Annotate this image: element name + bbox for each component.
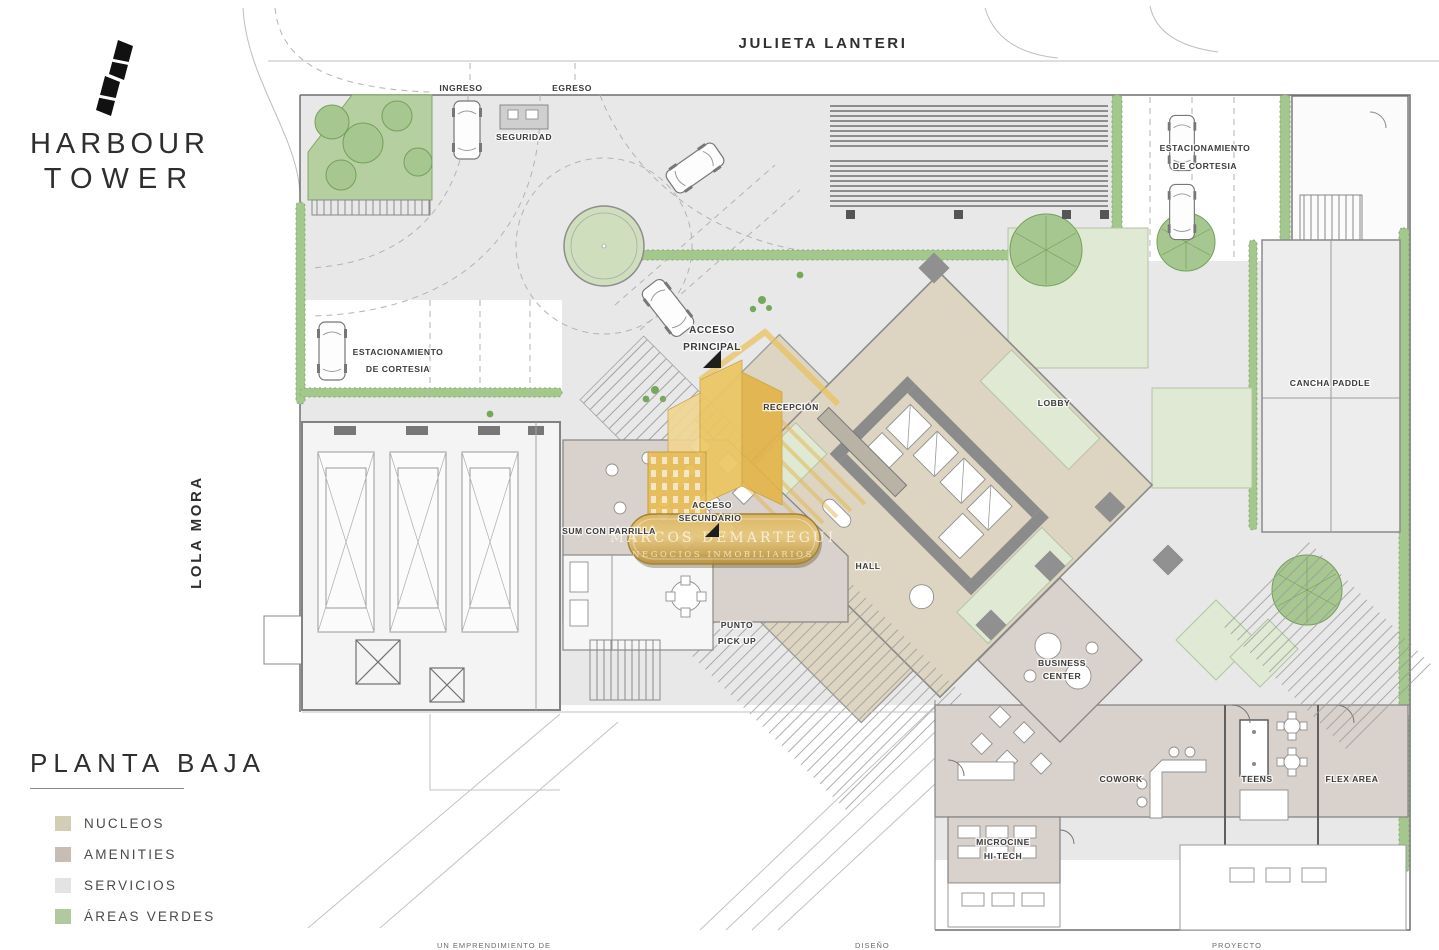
legend-item-areas-verdes: ÁREAS VERDES: [55, 901, 215, 932]
street-label-julieta-lanteri: JULIETA LANTERI: [739, 35, 908, 52]
label-punto-pickup-1: PUNTO: [721, 620, 753, 630]
legend-label: NUCLEOS: [84, 816, 165, 831]
page-title: PLANTA BAJA: [30, 748, 266, 779]
label-teens: TEENS: [1241, 774, 1272, 784]
brand-logo-icon: [93, 40, 136, 116]
label-estacionamiento-top-1: ESTACIONAMIENTO: [1160, 143, 1251, 153]
brand-wordmark: HARBOUR TOWER: [15, 128, 225, 196]
legend-item-nucleos: NUCLEOS: [55, 808, 215, 839]
legend-label: SERVICIOS: [84, 878, 177, 893]
label-sum-con-parrilla: SUM CON PARRILLA: [562, 526, 656, 536]
label-estacionamiento-left-1: ESTACIONAMIENTO: [353, 347, 444, 357]
label-acceso-secundario-2: SECUNDARIO: [679, 513, 742, 523]
legend-item-amenities: AMENITIES: [55, 839, 215, 870]
label-business-center-1: BUSINESS: [1038, 658, 1086, 668]
label-microcine-1: MICROCINE: [976, 837, 1030, 847]
nucleos-swatch: [55, 816, 71, 831]
floorplan-canvas: { "brand": {"line1": "HARBOUR", "line2":…: [0, 0, 1439, 950]
legend-label: AMENITIES: [84, 847, 177, 862]
footer-design: DISEÑO: [855, 941, 890, 950]
label-estacionamiento-top-2: DE CORTESIA: [1173, 161, 1237, 171]
servicios-swatch: [55, 878, 71, 893]
amenities-swatch: [55, 847, 71, 862]
label-flex-area: FLEX AREA: [1326, 774, 1379, 784]
label-hall: HALL: [856, 561, 881, 571]
label-egreso: EGRESO: [552, 83, 592, 93]
label-seguridad: SEGURIDAD: [496, 132, 552, 142]
label-estacionamiento-left-2: DE CORTESIA: [366, 364, 430, 374]
brand-line1: HARBOUR: [15, 128, 225, 161]
label-ingreso: INGRESO: [439, 83, 482, 93]
security-booth: [500, 105, 548, 129]
stair-block: [590, 640, 660, 700]
car-icon: [452, 101, 482, 159]
label-recepcion: RECEPCIÓN: [763, 401, 819, 412]
title-rule: [30, 788, 184, 789]
footer-developer: UN EMPRENDIMIENTO DE: [437, 941, 551, 950]
label-lobby: LOBBY: [1038, 398, 1071, 408]
street-label-lola-mora: LOLA MORA: [188, 475, 205, 589]
label-business-center-2: CENTER: [1043, 671, 1082, 681]
label-acceso-secundario-1: ACCESO: [692, 500, 732, 510]
label-cowork: COWORK: [1099, 774, 1142, 784]
legend: NUCLEOS AMENITIES SERVICIOS ÁREAS VERDES: [55, 808, 215, 932]
car-icon: [1168, 184, 1197, 239]
pergola-strip: [830, 103, 1109, 219]
brand-line2: TOWER: [15, 163, 225, 196]
legend-label: ÁREAS VERDES: [84, 909, 215, 924]
label-cancha-paddle: CANCHA PADDLE: [1290, 378, 1371, 388]
areas-verdes-swatch: [55, 909, 71, 924]
legend-item-servicios: SERVICIOS: [55, 870, 215, 901]
bike-rack: [312, 200, 430, 215]
label-microcine-2: HI-TECH: [984, 851, 1022, 861]
label-acceso-principal-1: ACCESO: [689, 325, 735, 336]
footer-project: PROYECTO: [1212, 941, 1262, 950]
car-icon: [317, 322, 347, 380]
truck-icon: [264, 616, 304, 664]
label-acceso-principal-2: PRINCIPAL: [683, 342, 741, 353]
label-punto-pickup-2: PICK UP: [718, 636, 756, 646]
watermark-tagline: NEGOCIOS INMOBILIARIOS: [632, 549, 814, 559]
